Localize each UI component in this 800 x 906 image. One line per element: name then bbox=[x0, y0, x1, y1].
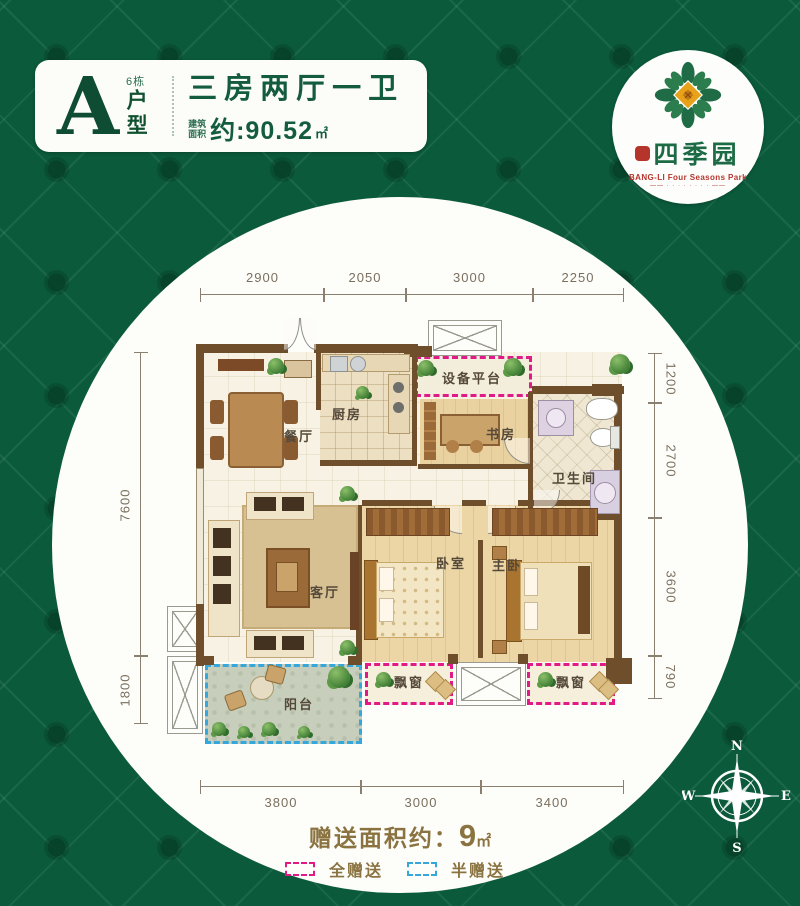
compass-west-label: W bbox=[682, 789, 696, 804]
wall-pier bbox=[200, 656, 214, 665]
wall-segment bbox=[196, 344, 288, 353]
dim-value: 2700 bbox=[664, 444, 679, 477]
label-master: 主卧 bbox=[492, 555, 522, 574]
plant-icon bbox=[298, 726, 310, 738]
shower-drain-icon bbox=[546, 408, 566, 428]
half-gift-swatch-icon bbox=[407, 862, 437, 876]
sofa-cushion bbox=[213, 556, 231, 576]
label-dining: 餐厅 bbox=[284, 426, 314, 445]
bedroom-wardrobe bbox=[366, 508, 450, 536]
nightstand bbox=[492, 640, 507, 654]
gift-legend: 全赠送 半赠送 bbox=[0, 857, 800, 881]
dining-chair bbox=[284, 400, 298, 424]
full-gift-swatch-icon bbox=[285, 862, 315, 876]
dim-value: 3600 bbox=[664, 571, 679, 604]
dim-line bbox=[654, 518, 655, 656]
shaft-bottom bbox=[456, 662, 526, 706]
dim-right-2: 2700 bbox=[648, 402, 662, 519]
shaft-left-lower bbox=[167, 656, 203, 734]
wall-segment bbox=[320, 460, 417, 466]
compass-south-label: S bbox=[732, 841, 741, 854]
dining-chair bbox=[210, 400, 224, 424]
dim-line bbox=[654, 656, 655, 698]
gift-area-text: 赠送面积约：9㎡ bbox=[0, 818, 800, 854]
dim-line bbox=[201, 294, 324, 295]
dim-value: 3800 bbox=[201, 795, 361, 810]
plant-icon bbox=[340, 640, 355, 655]
dim-line bbox=[201, 786, 361, 787]
bed-pillow bbox=[379, 567, 394, 591]
sofa-cushion bbox=[254, 636, 276, 650]
label-bay-1: 飘窗 bbox=[394, 672, 424, 691]
wall-segment bbox=[362, 500, 432, 506]
full-gift-label: 全赠送 bbox=[329, 857, 383, 881]
shaft-x-icon bbox=[461, 667, 521, 701]
study-chair bbox=[446, 440, 459, 453]
wall-segment bbox=[316, 352, 321, 410]
dim-value: 1200 bbox=[664, 362, 679, 395]
bathroom-sink bbox=[586, 398, 618, 420]
dim-line bbox=[406, 294, 533, 295]
floor-plan: 餐厅 厨房 设备平台 书房 卫生间 客厅 卧室 主卧 阳台 飘窗 飘窗 2900… bbox=[0, 0, 800, 906]
sofa-cushion bbox=[282, 497, 304, 511]
dim-value: 3000 bbox=[406, 270, 533, 285]
plant-icon bbox=[538, 672, 553, 687]
plant-icon bbox=[238, 726, 250, 738]
dim-value: 3400 bbox=[481, 795, 623, 810]
label-bay-2: 飘窗 bbox=[556, 672, 586, 691]
dim-line bbox=[361, 786, 481, 787]
dim-bottom-2: 3000 bbox=[360, 780, 482, 794]
entry-door-leaf bbox=[284, 318, 300, 350]
dim-line bbox=[140, 656, 141, 723]
dim-bottom-1: 3800 bbox=[200, 780, 362, 794]
dim-top-1: 2900 bbox=[200, 288, 325, 302]
sofa-cushion bbox=[213, 584, 231, 604]
master-wardrobe bbox=[492, 508, 598, 536]
compass-rose-icon: N S W E bbox=[682, 736, 792, 854]
plant-icon bbox=[356, 386, 369, 399]
wall-segment bbox=[478, 540, 483, 658]
dim-value: 1800 bbox=[118, 673, 133, 706]
dim-value: 2900 bbox=[201, 270, 324, 285]
wall-segment bbox=[314, 344, 418, 353]
tv-console bbox=[350, 552, 359, 630]
kitchen-sink bbox=[330, 356, 348, 372]
bed-pillow bbox=[524, 602, 538, 630]
wall-segment bbox=[418, 464, 532, 469]
plant-icon bbox=[328, 666, 350, 688]
dim-right-1: 1200 bbox=[648, 353, 662, 404]
shaft-x-icon bbox=[172, 611, 198, 647]
shaft-x-icon bbox=[172, 661, 198, 729]
sofa-cushion bbox=[254, 497, 276, 511]
sofa-cushion bbox=[213, 528, 231, 548]
dim-right-3: 3600 bbox=[648, 517, 662, 657]
dim-value: 7600 bbox=[118, 488, 133, 521]
half-gift-label: 半赠送 bbox=[451, 857, 505, 881]
plant-icon bbox=[262, 722, 276, 736]
wall-segment bbox=[462, 500, 486, 506]
stove-burner-icon bbox=[393, 382, 404, 393]
shaft-x-icon bbox=[433, 325, 497, 351]
dining-table bbox=[228, 392, 284, 468]
dim-value: 790 bbox=[664, 665, 679, 690]
label-bedroom: 卧室 bbox=[436, 553, 466, 572]
compass-north-label: N bbox=[731, 739, 743, 754]
dim-value: 3000 bbox=[361, 795, 481, 810]
shoe-cabinet bbox=[284, 360, 312, 378]
bath-basin-icon bbox=[594, 482, 616, 504]
study-chair bbox=[470, 440, 483, 453]
bed-pillow bbox=[524, 568, 538, 596]
plant-icon bbox=[418, 360, 434, 376]
dim-top-2: 2050 bbox=[323, 288, 407, 302]
plant-icon bbox=[268, 358, 284, 374]
coffee-table-tray bbox=[276, 562, 298, 592]
dim-left-2: 1800 bbox=[134, 655, 148, 724]
dim-line bbox=[654, 354, 655, 403]
gift-value: 9 bbox=[459, 818, 476, 853]
plant-icon bbox=[376, 672, 391, 687]
label-bathroom: 卫生间 bbox=[552, 468, 597, 487]
label-balcony: 阳台 bbox=[284, 694, 314, 713]
plant-icon bbox=[610, 354, 630, 374]
kitchen-sink bbox=[350, 356, 366, 372]
dim-line bbox=[533, 294, 623, 295]
bed-pillow bbox=[379, 598, 394, 622]
wall-pier bbox=[348, 656, 362, 665]
compass-east-label: E bbox=[781, 789, 791, 804]
wall-pier bbox=[518, 654, 528, 664]
dining-chair bbox=[210, 436, 224, 460]
window-left bbox=[196, 468, 204, 606]
wall-pier bbox=[448, 654, 458, 664]
dim-line bbox=[324, 294, 406, 295]
label-kitchen: 厨房 bbox=[332, 404, 362, 423]
dim-left-1: 7600 bbox=[134, 352, 148, 657]
wall-segment bbox=[412, 352, 417, 464]
dim-line bbox=[481, 786, 623, 787]
plant-icon bbox=[504, 358, 522, 376]
dim-line bbox=[654, 403, 655, 518]
master-bed-footboard bbox=[578, 566, 590, 634]
sofa-cushion bbox=[282, 636, 304, 650]
dim-line bbox=[140, 353, 141, 656]
label-study: 书房 bbox=[486, 424, 516, 443]
plant-icon bbox=[212, 722, 226, 736]
label-living: 客厅 bbox=[310, 582, 340, 601]
study-shelf bbox=[424, 402, 436, 460]
dim-top-4: 2250 bbox=[532, 288, 624, 302]
plant-icon bbox=[340, 486, 355, 501]
dim-value: 2050 bbox=[324, 270, 406, 285]
dim-right-4: 790 bbox=[648, 655, 662, 699]
stove-burner-icon bbox=[393, 402, 404, 413]
gift-unit: ㎡ bbox=[476, 833, 491, 850]
toilet-tank bbox=[610, 426, 620, 449]
wall-segment bbox=[196, 344, 204, 470]
label-equipment: 设备平台 bbox=[442, 368, 502, 387]
shaft-top bbox=[428, 320, 502, 356]
dim-value: 2250 bbox=[533, 270, 623, 285]
entry-door-leaf bbox=[300, 318, 316, 350]
dim-bottom-3: 3400 bbox=[480, 780, 624, 794]
gift-label: 赠送面积约： bbox=[309, 825, 459, 851]
dim-top-3: 3000 bbox=[405, 288, 534, 302]
dining-console bbox=[218, 359, 264, 371]
